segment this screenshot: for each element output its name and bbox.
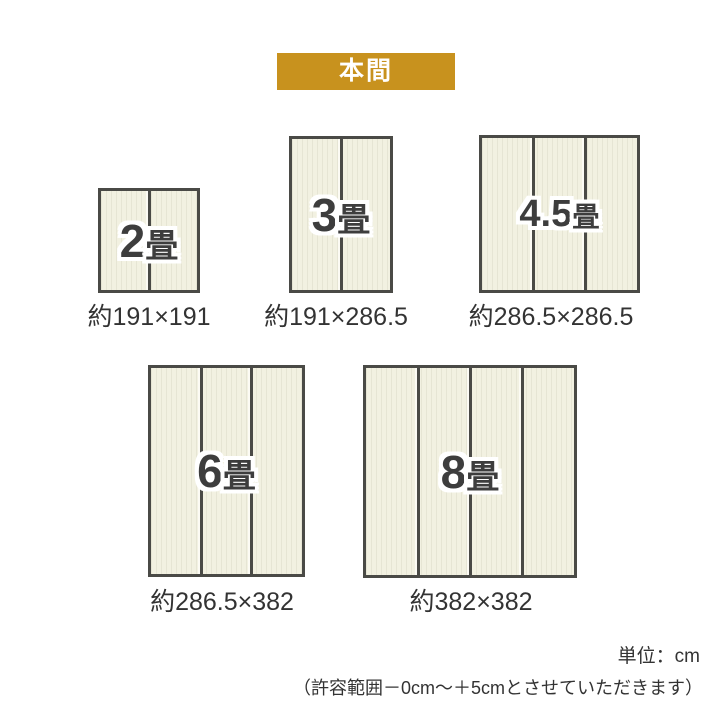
mat-6jo-count: 6 <box>197 445 223 497</box>
mat-8jo-unit: 畳 <box>466 459 499 496</box>
mat-6jo-unit: 畳 <box>223 458 256 495</box>
mat-45jo-dimensions: 約286.5×286.5 <box>469 305 634 330</box>
size-standard-badge: 本間 <box>277 53 455 90</box>
mat-8jo-dimensions: 約382×382 <box>409 590 532 615</box>
mat-6jo-label: 6畳 <box>197 448 256 494</box>
mat-3jo-dimensions: 約191×286.5 <box>264 305 408 330</box>
mat-45jo-unit: 畳 <box>572 201 599 232</box>
mat-2jo-unit: 畳 <box>145 228 178 265</box>
mat-3jo: 3畳 <box>289 136 393 293</box>
tatami-seam <box>417 368 420 575</box>
mat-6jo: 6畳 <box>148 365 305 577</box>
mat-8jo-count: 8 <box>441 446 467 498</box>
mat-6jo-dimensions: 約286.5×382 <box>150 590 294 615</box>
mat-3jo-count: 3 <box>312 189 338 241</box>
mat-45jo-count: 4.5 <box>519 193 572 235</box>
mat-45jo: 4.5畳 <box>479 135 640 293</box>
tolerance-note: （許容範囲－0cm～＋5cmとさせていただきます） <box>293 679 703 697</box>
mat-8jo-label: 8畳 <box>441 449 500 495</box>
mat-2jo-count: 2 <box>120 215 146 267</box>
mat-2jo-dimensions: 約191×191 <box>87 305 210 330</box>
mat-2jo-label: 2畳 <box>120 218 179 264</box>
mat-8jo: 8畳 <box>363 365 577 578</box>
mat-2jo: 2畳 <box>98 188 200 293</box>
mat-45jo-label: 4.5畳 <box>519 195 599 233</box>
mat-3jo-label: 3畳 <box>312 192 371 238</box>
mat-3jo-unit: 畳 <box>337 202 370 239</box>
tatami-size-diagram: 本間 2畳 約191×191 3畳 約191×286.5 4.5畳 約286.5… <box>0 0 720 720</box>
unit-note: 単位：cm <box>618 647 700 666</box>
tatami-seam <box>521 368 524 575</box>
